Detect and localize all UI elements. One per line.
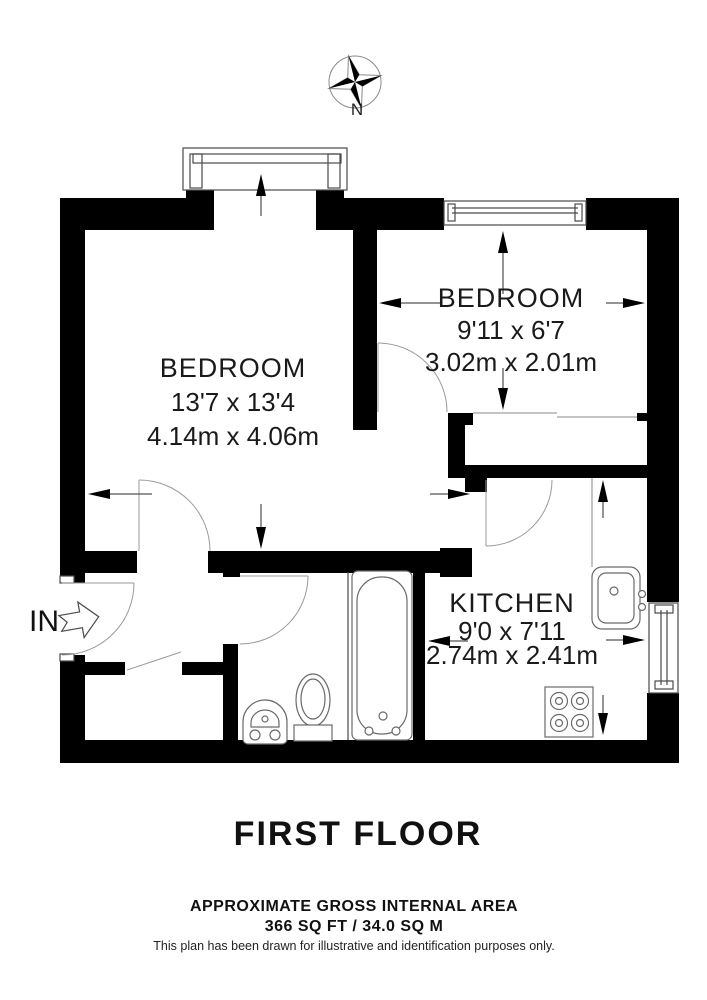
footer-area-value: 366 SQ FT / 34.0 SQ M: [265, 918, 444, 935]
dimension-arrow: [379, 298, 441, 308]
wall-segment: [465, 478, 487, 492]
bathtub-icon: [352, 571, 412, 740]
dimension-arrow: [606, 635, 645, 645]
wall-segment: [83, 662, 125, 675]
door-kitchen: [486, 480, 552, 546]
toilet-icon: [294, 674, 332, 741]
door-bedroom1: [139, 480, 210, 551]
door-swing-arc: [139, 480, 210, 551]
wall-segment: [223, 551, 240, 577]
door-swing-arc: [486, 480, 552, 546]
room-name: BEDROOM: [438, 283, 585, 313]
room-dims-metric: 3.02m x 2.01m: [425, 347, 597, 377]
room-dims-imperial: 9'11 x 6'7: [457, 315, 565, 345]
room-dims-metric: 4.14m x 4.06m: [147, 421, 319, 451]
wall-segment: [60, 198, 188, 230]
entry-label: IN: [29, 605, 59, 638]
room-label-bedroom2: BEDROOM 9'11 x 6'7 3.02m x 2.01m: [425, 283, 597, 377]
door-swing-arc: [240, 576, 308, 644]
room-dims-metric: 2.74m x 2.41m: [426, 640, 598, 670]
kitchen-sink-icon: [592, 567, 646, 629]
footer-disclaimer: This plan has been drawn for illustrativ…: [153, 939, 554, 953]
door-swing-arc: [62, 583, 134, 655]
room-name: KITCHEN: [449, 588, 575, 618]
floor-plan-page: N: [0, 0, 707, 1000]
wall-segment: [316, 190, 344, 230]
wall-segment: [353, 228, 377, 430]
entry-arrow-icon: [57, 599, 102, 641]
door-leaf: [127, 652, 181, 670]
hob-icon: [545, 687, 593, 737]
wall-segment: [182, 662, 223, 675]
footer-area-heading: APPROXIMATE GROSS INTERNAL AREA: [190, 898, 518, 915]
wall-segment: [448, 413, 465, 478]
compass-north-label: N: [351, 100, 363, 119]
wall-segment: [208, 551, 472, 573]
dimension-arrow: [88, 489, 152, 499]
wall-segment: [413, 570, 425, 740]
window-frame: [649, 603, 678, 693]
dimension-arrow: [430, 489, 470, 499]
dimension-arrow: [256, 504, 266, 549]
compass: N: [322, 49, 387, 119]
wall-segment: [60, 551, 137, 573]
wall-segment: [186, 190, 214, 230]
plan-title: FIRST FLOOR: [234, 815, 483, 853]
entry: IN: [29, 599, 102, 641]
bedroom2-window: [444, 201, 586, 225]
dimension-arrow: [598, 695, 608, 735]
room-name: BEDROOM: [160, 353, 307, 383]
room-label-bedroom1: BEDROOM 13'7 x 13'4 4.14m x 4.06m: [147, 353, 319, 451]
wall-segment: [440, 548, 472, 577]
room-label-kitchen: KITCHEN 9'0 x 7'11 2.74m x 2.41m: [426, 588, 598, 670]
floor-plan-canvas: N: [0, 0, 707, 1000]
wall-segment: [637, 413, 647, 421]
wall-segment: [647, 198, 679, 602]
kitchen-window: [649, 603, 678, 693]
bathroom-fixtures: [243, 571, 412, 744]
dimension-arrow: [606, 298, 645, 308]
door-closet: [127, 652, 181, 670]
wall-segment: [450, 465, 650, 478]
wall-segment: [465, 413, 473, 425]
wall-segment: [60, 740, 679, 763]
sink-basin-icon: [243, 700, 287, 744]
door-bathroom: [240, 576, 308, 644]
wall-segment: [344, 198, 444, 230]
wall-segment: [223, 644, 238, 740]
door-jamb: [60, 576, 74, 583]
dimension-arrow: [598, 480, 608, 518]
bay-window: [183, 148, 347, 190]
room-dims-imperial: 13'7 x 13'4: [171, 387, 295, 417]
wall-segment: [60, 198, 85, 583]
